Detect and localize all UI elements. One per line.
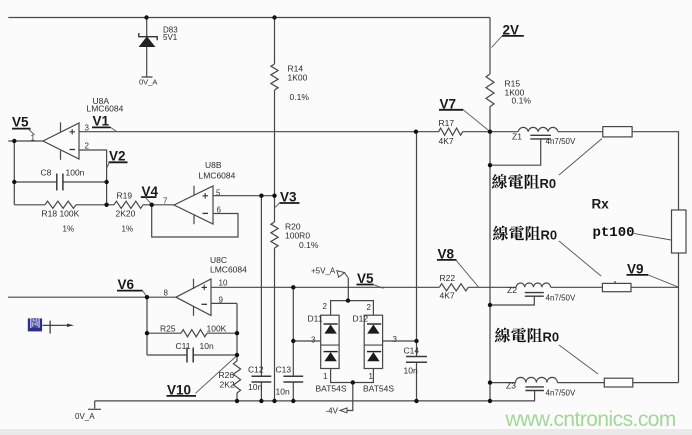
svg-text:LMC6084: LMC6084	[87, 104, 124, 114]
svg-text:100K: 100K	[207, 324, 227, 334]
svg-text:V1: V1	[93, 114, 110, 129]
svg-text:2: 2	[367, 303, 372, 312]
svg-text:-4V: -4V	[326, 407, 339, 416]
svg-text:R19: R19	[117, 191, 133, 201]
svg-text:0.1%: 0.1%	[512, 96, 532, 106]
svg-text:8: 8	[164, 289, 169, 298]
svg-text:Rx: Rx	[592, 197, 610, 212]
svg-text:100n: 100n	[66, 168, 85, 178]
svg-text:0V_A: 0V_A	[139, 77, 157, 86]
svg-text:2: 2	[85, 142, 90, 151]
svg-text:R0: R0	[540, 176, 557, 191]
svg-text:4K7: 4K7	[439, 136, 454, 146]
svg-text:10n: 10n	[200, 341, 214, 351]
svg-text:1%: 1%	[122, 225, 134, 234]
svg-text:U8C: U8C	[210, 255, 227, 265]
svg-text:V6: V6	[118, 277, 135, 292]
svg-text:10n: 10n	[404, 366, 418, 376]
svg-text:0.1%: 0.1%	[290, 92, 310, 102]
svg-text:5V1: 5V1	[163, 33, 178, 42]
svg-text:V5: V5	[12, 115, 29, 130]
svg-text:4n7/50V: 4n7/50V	[546, 137, 576, 146]
svg-text:2: 2	[323, 302, 328, 311]
svg-text:4K7: 4K7	[440, 291, 455, 301]
svg-text:R0: R0	[543, 330, 560, 345]
svg-text:3: 3	[311, 336, 316, 345]
svg-text:1: 1	[369, 372, 374, 381]
svg-text:pt100: pt100	[593, 225, 635, 241]
svg-text:4n7/50V: 4n7/50V	[546, 389, 576, 398]
svg-text:Z3: Z3	[506, 381, 516, 391]
svg-text:C8: C8	[41, 168, 52, 178]
svg-text:4n7/50V: 4n7/50V	[546, 294, 576, 303]
svg-text:R25: R25	[160, 324, 176, 334]
svg-text:1%: 1%	[63, 225, 75, 234]
svg-text:R26: R26	[219, 370, 235, 380]
svg-text:10: 10	[219, 279, 228, 288]
svg-text:C13: C13	[276, 365, 292, 375]
svg-text:0V_A: 0V_A	[75, 412, 95, 421]
svg-text:BAT54S: BAT54S	[363, 384, 394, 394]
svg-text:R0: R0	[541, 228, 558, 243]
svg-text:C14: C14	[404, 346, 420, 356]
svg-text:C12: C12	[248, 365, 264, 375]
svg-text:R18 100K: R18 100K	[42, 209, 80, 219]
svg-text:7: 7	[163, 197, 168, 206]
svg-text:2K20: 2K20	[116, 209, 136, 219]
svg-text:LMC6084: LMC6084	[199, 171, 236, 181]
svg-text:C11: C11	[176, 341, 191, 351]
svg-text:1K00: 1K00	[288, 73, 308, 83]
svg-text:100R0: 100R0	[285, 231, 310, 241]
svg-text:R17: R17	[439, 118, 455, 128]
svg-text:10n: 10n	[248, 382, 262, 392]
svg-text:3: 3	[393, 335, 398, 344]
svg-text:www.cntronics.com: www.cntronics.com	[505, 408, 676, 431]
svg-text:R22: R22	[440, 273, 456, 283]
svg-text:BAT54S: BAT54S	[316, 384, 347, 394]
svg-text:D11: D11	[308, 314, 323, 324]
svg-text:+5V_A: +5V_A	[311, 267, 336, 276]
svg-text:2K2: 2K2	[220, 380, 235, 390]
svg-text:Z2: Z2	[507, 285, 517, 295]
svg-text:Z1: Z1	[512, 132, 522, 142]
svg-text:U8B: U8B	[205, 160, 222, 170]
svg-text:D12: D12	[353, 314, 369, 324]
svg-text:1: 1	[323, 372, 328, 381]
svg-text:0.1%: 0.1%	[299, 240, 319, 250]
svg-text:10n: 10n	[276, 387, 290, 397]
svg-text:V2: V2	[109, 149, 126, 164]
svg-text:LMC6084: LMC6084	[210, 265, 247, 275]
